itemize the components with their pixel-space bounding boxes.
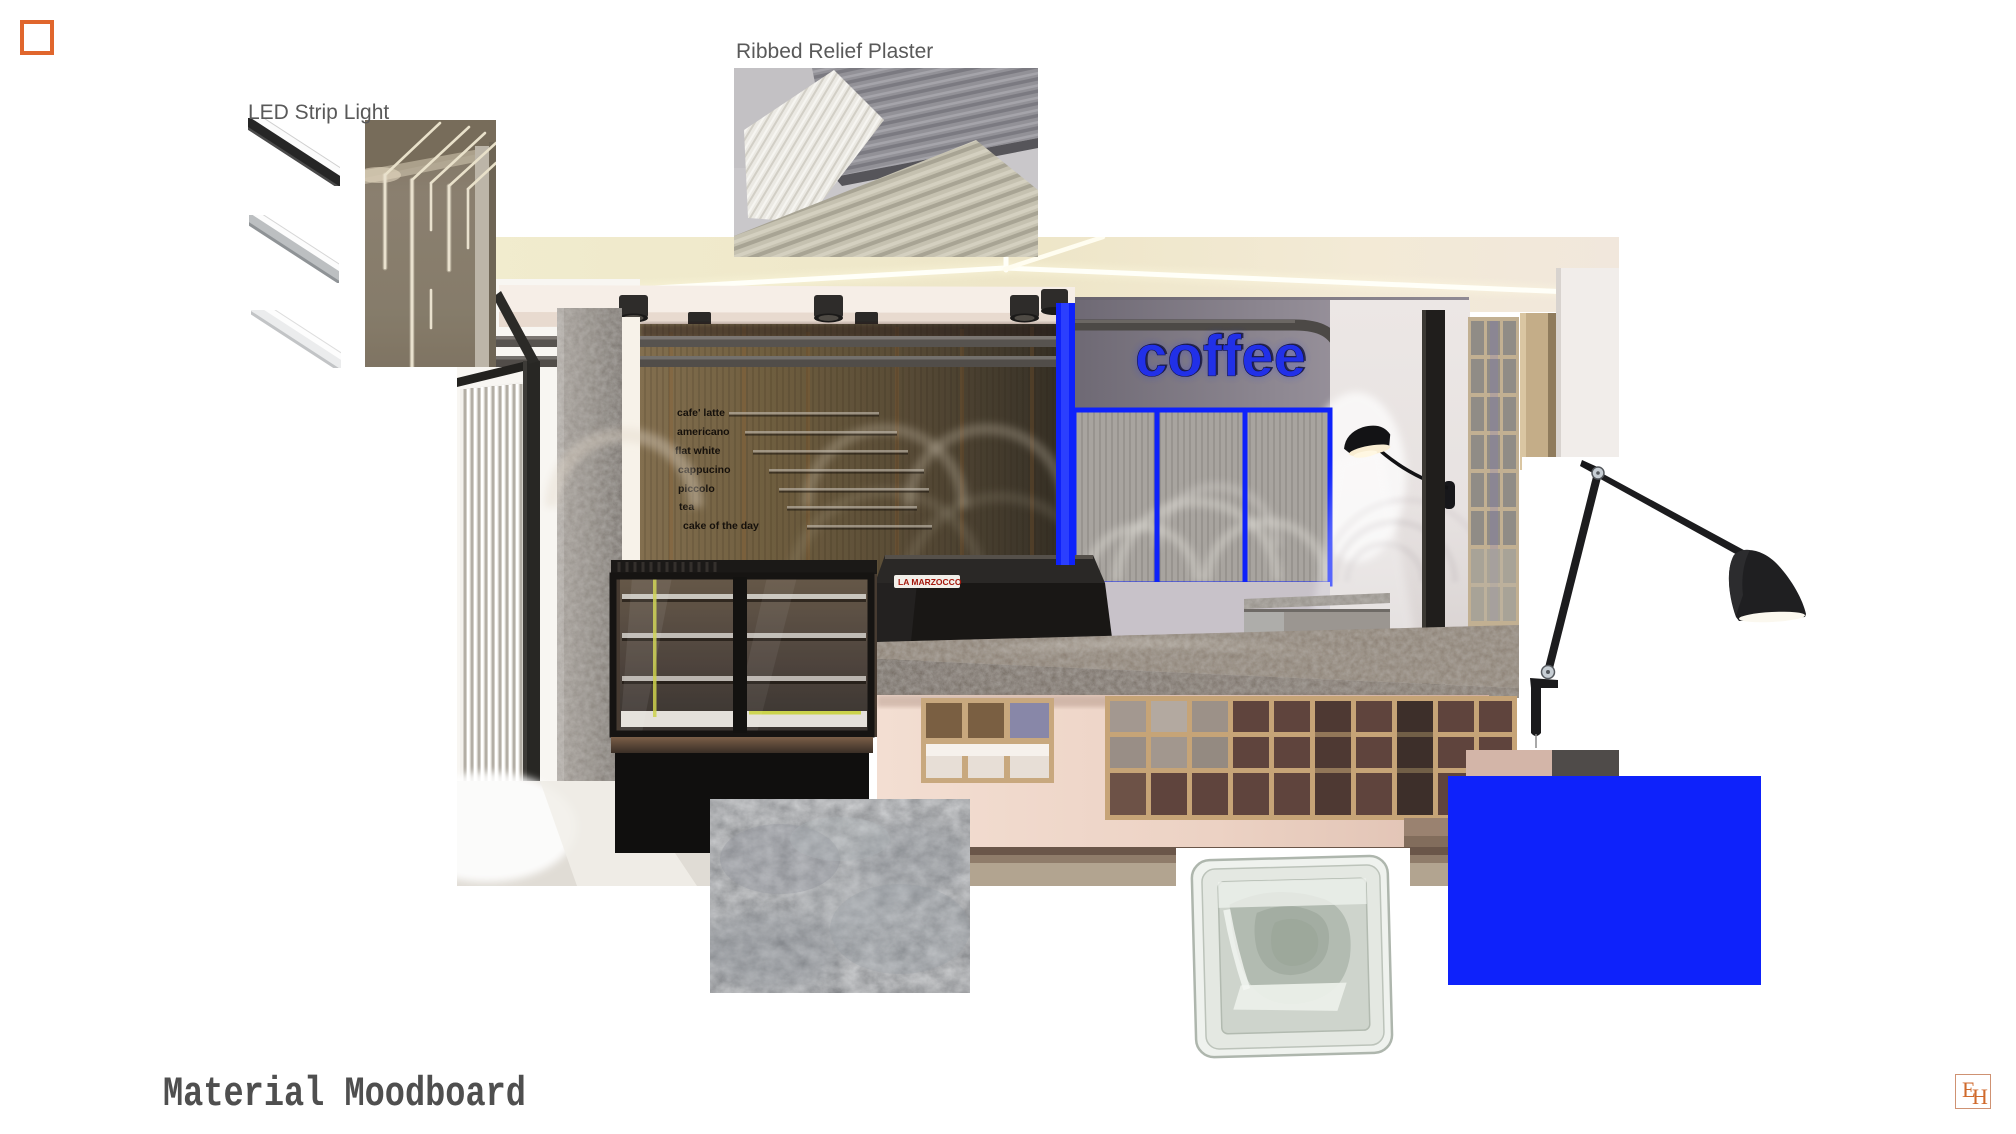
svg-text:americano: americano bbox=[677, 426, 730, 438]
svg-text:cafe' latte: cafe' latte bbox=[677, 407, 725, 419]
svg-text:LA MARZOCCO: LA MARZOCCO bbox=[898, 577, 962, 587]
svg-text:cake of the day: cake of the day bbox=[683, 520, 759, 532]
svg-text:coffee: coffee bbox=[1135, 324, 1306, 389]
